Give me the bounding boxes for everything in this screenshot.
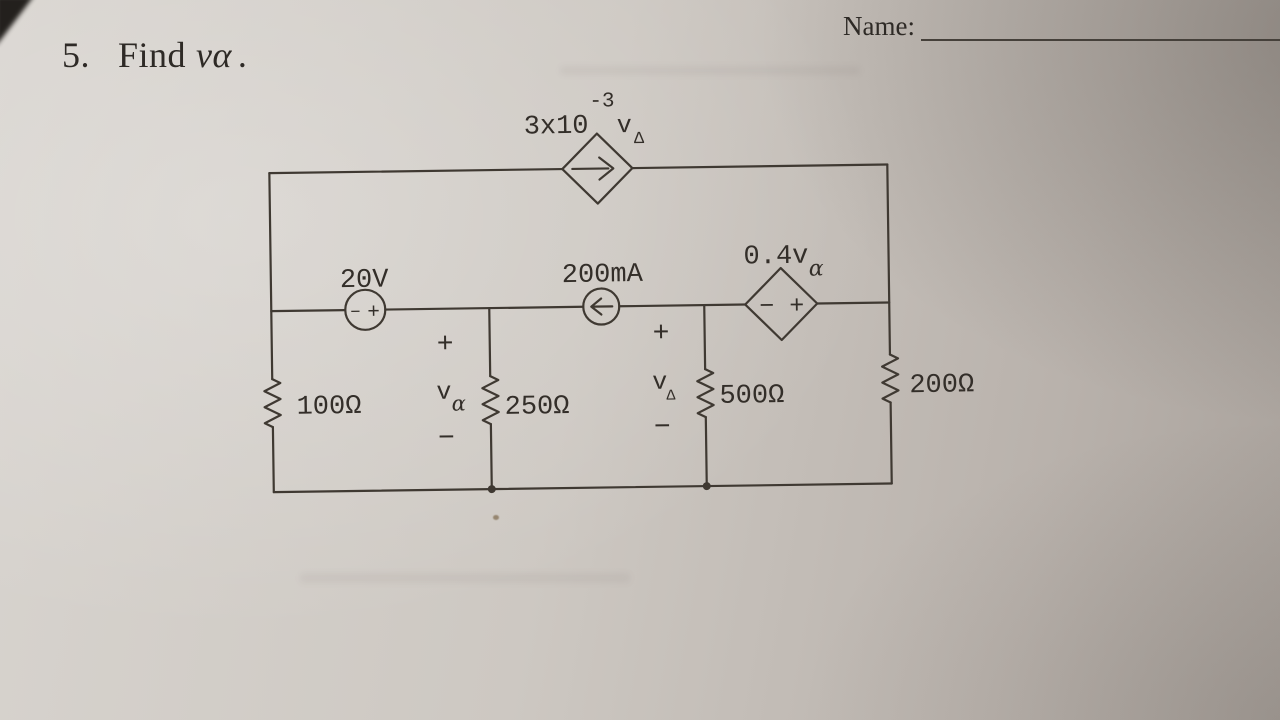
v-delta-variable: v bbox=[652, 368, 667, 397]
dep-current-source-variable: v bbox=[617, 111, 632, 140]
v-alpha-plus: + bbox=[437, 330, 454, 361]
resistor-250-label: 250Ω bbox=[504, 392, 569, 423]
junction-dot bbox=[703, 482, 711, 490]
branch-500-wire bbox=[704, 305, 707, 486]
v-delta-plus: + bbox=[652, 319, 669, 350]
v-alpha-variable: v bbox=[436, 378, 451, 407]
resistor-500-label: 500Ω bbox=[719, 381, 784, 412]
voltage-source-label: 20V bbox=[340, 265, 390, 296]
resistor-200-zigzag bbox=[882, 354, 899, 402]
dep-voltage-source-label: 0.4v bbox=[743, 242, 808, 273]
v-alpha-sub: α bbox=[451, 391, 466, 415]
current-source-label: 200mA bbox=[562, 260, 644, 291]
v-delta-minus: − bbox=[654, 413, 671, 444]
voltage-source-plus: + bbox=[367, 302, 380, 325]
resistor-100-label: 100Ω bbox=[296, 392, 361, 423]
dep-voltage-source-label-sub: α bbox=[809, 256, 824, 281]
v-delta-sub: Δ bbox=[666, 388, 675, 405]
wire-right bbox=[887, 165, 891, 484]
dep-current-source-variable-sub: Δ bbox=[634, 130, 645, 149]
junction-dot bbox=[488, 485, 496, 493]
current-arrow-right-icon bbox=[572, 157, 613, 180]
resistor-200-label: 200Ω bbox=[909, 370, 974, 401]
wire-left bbox=[269, 173, 273, 492]
dep-current-source-coefficient: 3x10 bbox=[524, 112, 589, 143]
resistor-250-zigzag bbox=[482, 376, 499, 424]
photographed-worksheet: 5.Findvα. Name: bbox=[0, 0, 1280, 720]
voltage-source-minus: − bbox=[350, 304, 360, 323]
resistor-100-zigzag bbox=[264, 379, 281, 427]
resistor-500-zigzag bbox=[697, 369, 714, 417]
wire-bottom bbox=[274, 483, 892, 492]
circuit-diagram: 3x10 -3 v Δ 20V − + 200mA 0.4v α − + 100… bbox=[0, 0, 1280, 720]
dep-voltage-source-polarity: − + bbox=[759, 292, 804, 322]
v-alpha-minus: − bbox=[438, 424, 455, 455]
current-arrow-left-icon bbox=[591, 298, 612, 314]
dep-current-source-exponent: -3 bbox=[589, 90, 615, 113]
